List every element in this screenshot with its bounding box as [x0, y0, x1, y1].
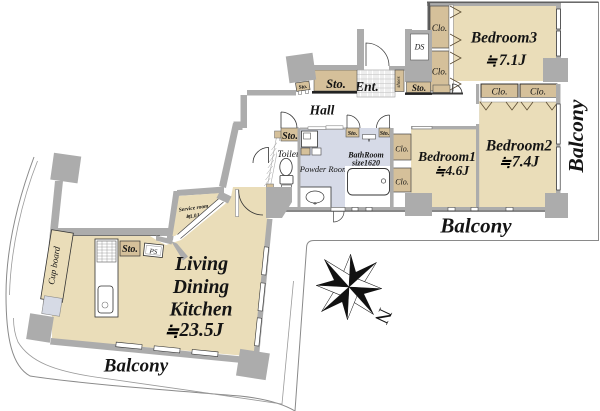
svg-text:Bedroom1: Bedroom1: [417, 149, 476, 164]
svg-text:Bedroom3: Bedroom3: [470, 30, 538, 47]
svg-text:Clo.: Clo.: [395, 178, 409, 187]
svg-text:Balcony: Balcony: [103, 356, 169, 377]
svg-text:Sto.: Sto.: [380, 131, 390, 137]
svg-text:4.6J: 4.6J: [445, 163, 471, 178]
svg-text:Sto.: Sto.: [122, 244, 138, 255]
svg-text:Clo.: Clo.: [530, 88, 546, 98]
svg-text:Sto.: Sto.: [282, 131, 298, 142]
svg-text:Powder Room: Powder Room: [299, 164, 348, 174]
svg-text:Sto.: Sto.: [412, 83, 426, 93]
svg-text:Living: Living: [174, 253, 228, 275]
svg-text:Clo.: Clo.: [432, 23, 447, 33]
svg-text:23.5J: 23.5J: [179, 320, 225, 341]
svg-text:shoes: shoes: [397, 76, 402, 87]
svg-text:Sto.: Sto.: [326, 77, 346, 91]
svg-text:Balcony: Balcony: [564, 99, 588, 173]
svg-text:Dining: Dining: [172, 277, 230, 298]
svg-text:Bedroom2: Bedroom2: [485, 138, 553, 155]
svg-text:PS: PS: [148, 247, 158, 256]
svg-text:Hall: Hall: [309, 103, 335, 118]
svg-text:Clo.: Clo.: [491, 88, 507, 98]
svg-text:DS: DS: [414, 43, 425, 52]
svg-text:Kitchen: Kitchen: [169, 300, 233, 321]
svg-text:7.1J: 7.1J: [499, 52, 527, 69]
svg-text:Clo.: Clo.: [432, 67, 447, 77]
svg-text:Clo.: Clo.: [395, 145, 409, 154]
svg-text:Sto.: Sto.: [348, 131, 358, 137]
svg-text:7.4J: 7.4J: [512, 154, 540, 171]
svg-text:Ent.: Ent.: [354, 79, 379, 94]
svg-text:Balcony: Balcony: [439, 214, 512, 238]
svg-text:size1620: size1620: [351, 159, 380, 168]
